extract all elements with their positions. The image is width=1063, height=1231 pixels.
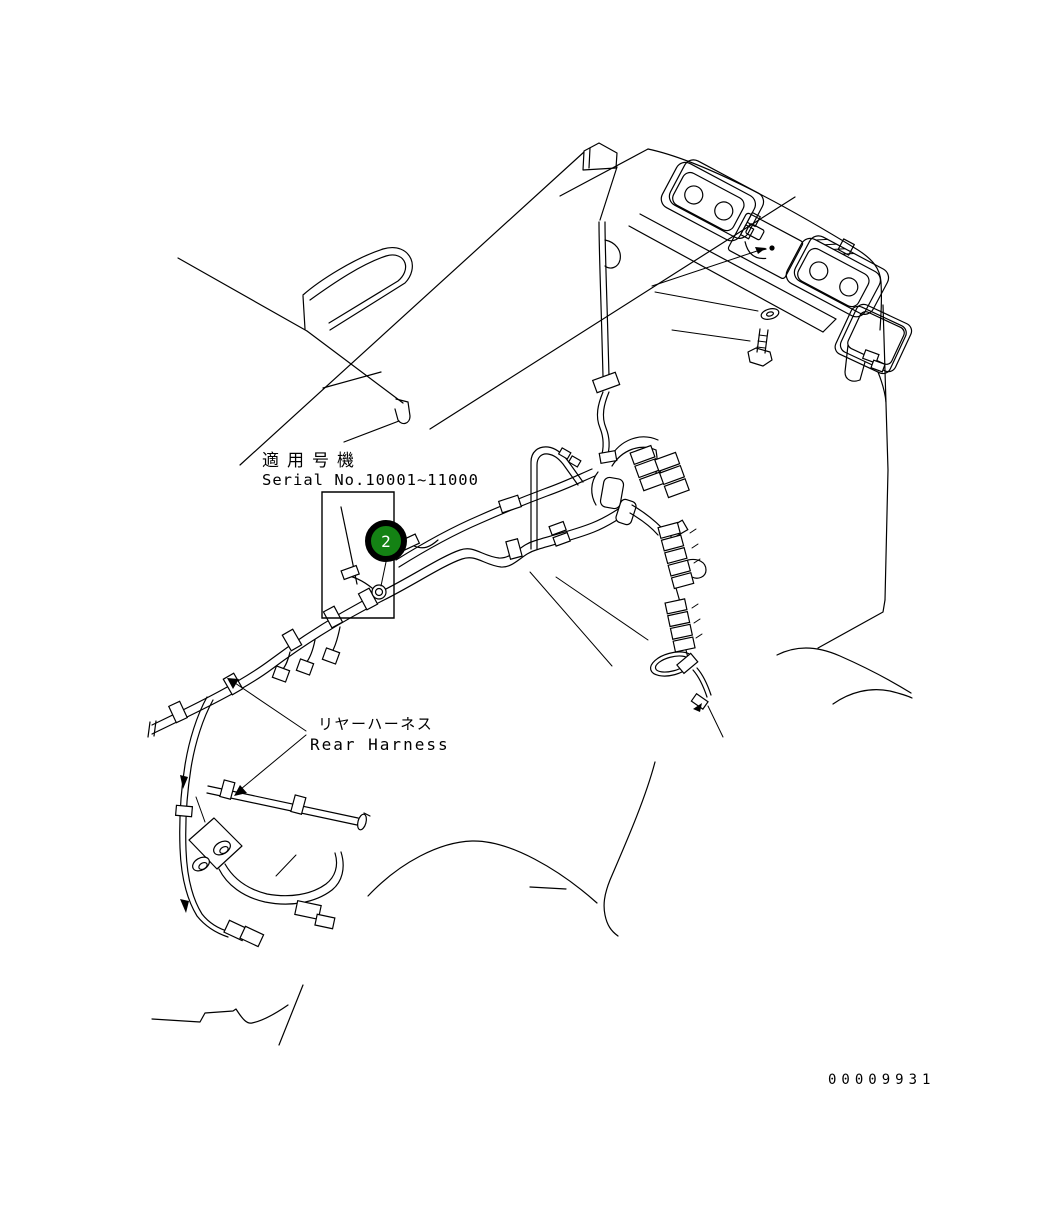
harness-clamp [282,629,301,651]
drawing-number: 00009931 [828,1072,935,1088]
rear-harness-label-leaders [227,678,306,796]
mount-bolt-dot [769,245,774,250]
callout-number: 2 [381,532,391,551]
lower-rod [207,780,370,831]
parts-diagram-page: 2 適用号機 Serial No.10001~11000 リヤーハーネス Rea… [0,0,1063,1231]
connector [322,648,339,664]
connector [593,372,620,392]
harness-arch-branch [531,447,583,549]
inline-connector [499,495,522,513]
central-junction [592,437,689,526]
connector [240,926,264,946]
mount-bolt [748,329,772,366]
parts-diagram-canvas: 2 適用号機 Serial No.10001~11000 リヤーハーネス Rea… [0,0,1063,1231]
serial-range-text: Serial No.10001~11000 [262,471,479,489]
connector [315,914,335,929]
washer [760,307,780,321]
roof-ridge-line [240,152,584,465]
roof-window-edge [430,197,795,429]
part-label-jp: リヤーハーネス [318,715,433,733]
connector [296,659,313,675]
roof-left-edge [178,258,307,331]
body-outline-arcs [152,648,912,1045]
connector-ladder-1 [658,523,694,589]
connector-ladder-2 [665,599,695,652]
applicable-serial-label-jp: 適用号機 [262,451,362,471]
roof-corner-tab [583,143,617,170]
round-connector [372,585,386,599]
roof-drop-wire [593,222,621,458]
left-drop-wire [176,697,264,947]
harness-clamp [169,701,187,722]
grab-handle [303,248,412,330]
roof-lamp-left [658,154,770,249]
part-label-en: Rear Harness [310,735,450,754]
roof-center-box [727,212,803,279]
connector [272,666,289,682]
callout-balloon-2[interactable]: 2 [368,523,404,586]
mid-leader-lines [530,572,648,666]
cab-roof-outline [178,143,888,648]
connector-ladder-branch [630,505,723,737]
